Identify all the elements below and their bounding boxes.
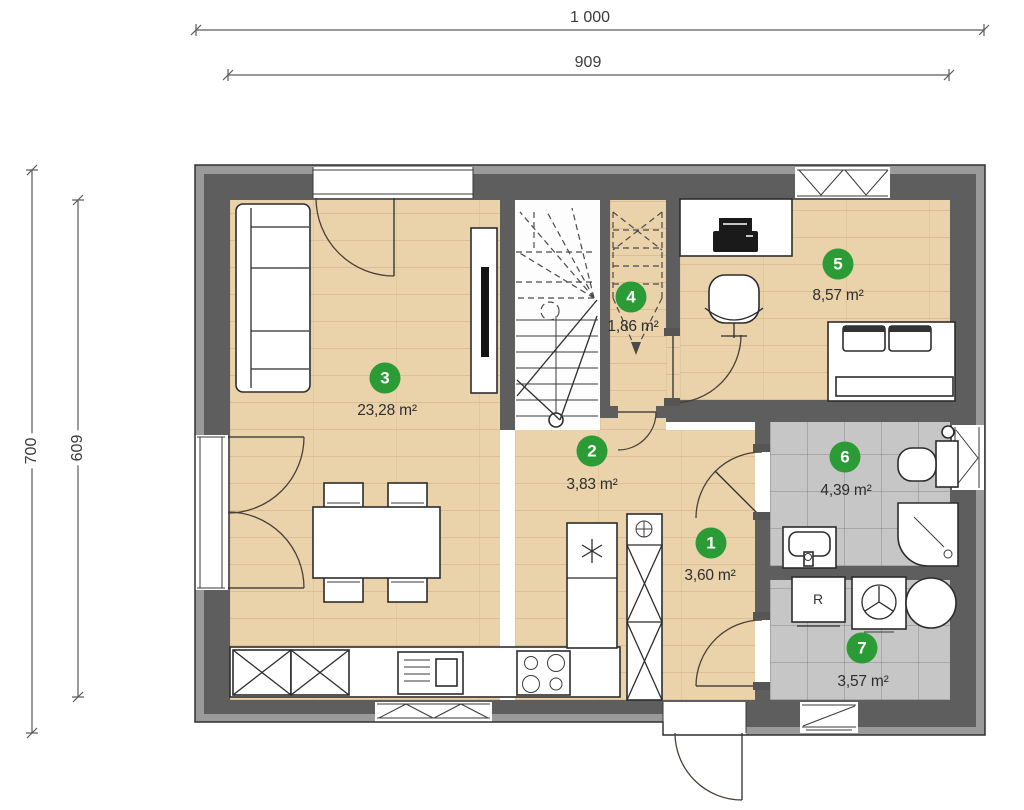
floor-plan: 1 000 909 700 609 1 2 3 4 5 6 7 3,60 m² … <box>0 0 1024 810</box>
wall-room4-door-left <box>600 406 618 418</box>
dimension-left-outer: 700 <box>23 434 41 469</box>
hallway-floor <box>515 430 755 700</box>
room-3-floor <box>230 200 500 700</box>
wall-room5-bath <box>680 400 950 422</box>
wall-room4-door-right <box>656 406 680 418</box>
wall-stairs-right <box>600 200 610 415</box>
french-door-opening <box>195 435 228 590</box>
room-badge-3: 3 <box>370 363 401 394</box>
door-entry <box>675 733 742 800</box>
staircase-floor <box>515 200 600 430</box>
room-badge-2: 2 <box>577 436 608 467</box>
wall-room4-room5 <box>666 200 680 335</box>
wall-bath-left-upper <box>755 422 770 452</box>
utility-appliance-label: R <box>813 591 823 607</box>
room-area-4: 1,86 m² <box>607 318 658 336</box>
room7-window-opening <box>800 702 858 733</box>
room-area-6: 4,39 m² <box>820 482 871 500</box>
kitchen-window-opening <box>375 702 492 722</box>
wall-stairs-left <box>500 200 515 430</box>
room-badge-4: 4 <box>616 282 647 313</box>
dimension-top-outer: 1 000 <box>566 9 614 27</box>
room-area-2: 3,83 m² <box>566 476 617 494</box>
room5-window-opening <box>795 167 890 198</box>
dimension-top-inner: 909 <box>571 54 606 72</box>
entry-door-opening <box>663 702 746 735</box>
room-area-7: 3,57 m² <box>837 673 888 691</box>
wall-bath-left-lower <box>755 518 770 568</box>
room-badge-7: 7 <box>847 633 878 664</box>
balcony-door-opening <box>313 167 473 198</box>
room-badge-6: 6 <box>830 442 861 473</box>
room-badge-1: 1 <box>696 528 727 559</box>
room-area-3: 23,28 m² <box>357 402 417 420</box>
dimension-left-inner: 609 <box>69 431 87 466</box>
room-area-5: 8,57 m² <box>812 287 863 305</box>
wall-bath-room7 <box>755 566 950 580</box>
room-5-threshold <box>666 335 680 402</box>
room-area-1: 3,60 m² <box>684 567 735 585</box>
bathroom-window-opening <box>952 425 984 490</box>
wall-room7-left-lower <box>755 688 770 700</box>
room-badge-5: 5 <box>823 249 854 280</box>
wall-room7-left-upper <box>755 580 770 620</box>
